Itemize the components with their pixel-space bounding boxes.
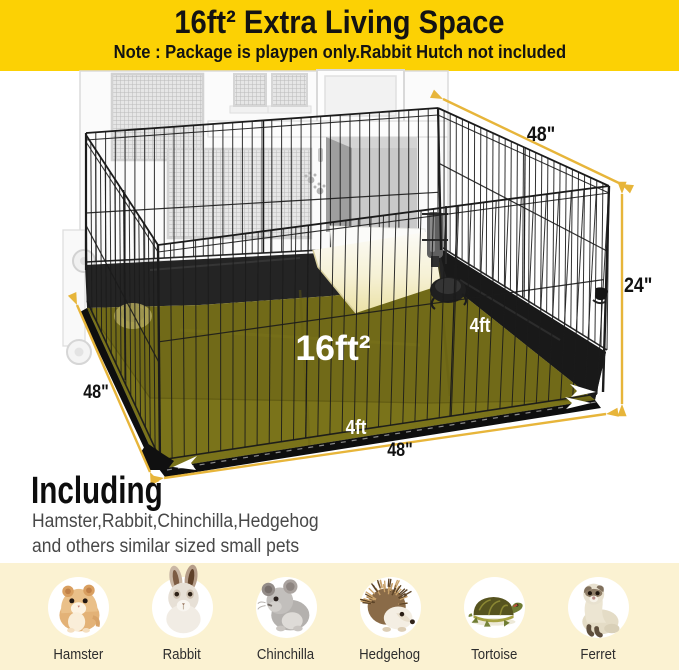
svg-text:4ft: 4ft bbox=[346, 416, 367, 439]
svg-text:48": 48" bbox=[527, 123, 555, 147]
svg-text:24": 24" bbox=[624, 274, 652, 298]
svg-text:4ft: 4ft bbox=[470, 314, 491, 337]
svg-text:48": 48" bbox=[387, 439, 413, 461]
svg-text:48": 48" bbox=[83, 381, 109, 403]
svg-text:16ft²: 16ft² bbox=[295, 329, 371, 368]
